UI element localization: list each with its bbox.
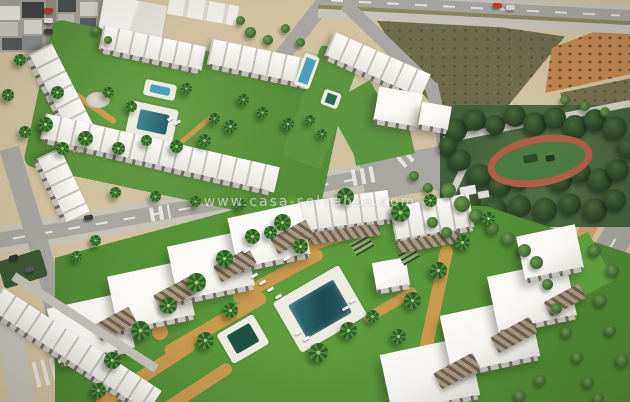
sun-lounger [302, 335, 310, 341]
sun-lounger [258, 279, 266, 285]
palm-tree [282, 118, 294, 130]
watermark: www.casa-solvenza.com [185, 193, 435, 211]
sun-lounger [348, 297, 356, 303]
palm-tree [293, 239, 308, 254]
street-tree [600, 107, 610, 117]
car [8, 253, 18, 260]
street-tree [551, 303, 562, 314]
palm-tree [309, 343, 328, 362]
palm-tree [366, 310, 379, 323]
street-tree [427, 217, 438, 228]
palm-tree [90, 235, 101, 246]
palm-tree [198, 134, 211, 147]
palm-tree [181, 83, 192, 94]
street-tree [542, 279, 553, 290]
palm-tree [404, 292, 421, 309]
palm-tree [91, 383, 106, 398]
palm-tree [19, 126, 31, 138]
palm-tree [78, 131, 93, 146]
street-tree [530, 256, 543, 269]
palm-tree [150, 191, 161, 202]
palm-tree [160, 297, 177, 314]
palm-tree [38, 117, 53, 132]
palm-tree [305, 115, 315, 125]
street-tree [616, 354, 629, 367]
street-tree [423, 183, 433, 193]
street-tree [593, 393, 604, 402]
street-tree [580, 101, 590, 111]
sun-lounger [166, 115, 174, 121]
street-tree [263, 35, 273, 45]
palm-tree [170, 140, 183, 153]
sun-lounger [341, 305, 349, 311]
sun-lounger [282, 255, 290, 261]
car [44, 29, 53, 34]
street-tree [236, 16, 245, 25]
palm-tree [112, 142, 125, 155]
palm-tree [2, 89, 14, 101]
palm-tree [71, 251, 82, 262]
car [505, 4, 514, 9]
palm-tree [245, 229, 260, 244]
palm-tree [391, 329, 406, 344]
sun-lounger [173, 119, 181, 125]
palm-tree [224, 120, 237, 133]
street-tree [245, 27, 256, 38]
car [83, 214, 93, 220]
palm-tree [317, 129, 327, 139]
palm-tree [209, 113, 220, 124]
street-tree [560, 95, 570, 105]
palm-tree [238, 94, 249, 105]
street-tree [104, 36, 112, 44]
car [44, 8, 53, 13]
street-tree [502, 232, 515, 245]
street-tree [454, 196, 470, 212]
palm-tree [257, 107, 268, 118]
sun-lounger [242, 247, 250, 253]
street-tree [518, 244, 531, 257]
street-tree [409, 171, 419, 181]
palm-tree [187, 273, 206, 292]
street-tree [561, 327, 572, 338]
palm-tree [14, 54, 26, 66]
street-tree [605, 325, 616, 336]
palm-tree [340, 322, 357, 339]
street-tree [441, 227, 452, 238]
street-tree [583, 377, 594, 388]
palm-tree [197, 332, 214, 349]
palm-tree [103, 87, 114, 98]
street-tree [296, 38, 305, 47]
palm-tree [264, 226, 277, 239]
street-tree [572, 352, 583, 363]
palm-tree [126, 101, 137, 112]
sun-lounger [294, 329, 302, 335]
palm-tree [56, 142, 69, 155]
palm-tree [216, 250, 233, 267]
palm-tree [455, 235, 470, 250]
palm-tree [430, 262, 447, 279]
sun-lounger [266, 286, 274, 292]
sun-lounger [274, 293, 282, 299]
aerial-development-render: www.casa-solvenza.com [0, 0, 630, 402]
street-tree [588, 244, 601, 257]
palm-tree [223, 303, 238, 318]
street-tree [92, 26, 101, 35]
car [492, 2, 501, 7]
street-tree [469, 209, 483, 223]
street-tree [535, 375, 546, 386]
street-tree [441, 183, 456, 198]
car [44, 18, 53, 23]
palm-tree [110, 187, 121, 198]
sun-lounger [250, 272, 258, 278]
street-tree [606, 264, 619, 277]
palm-tree [51, 86, 64, 99]
palm-tree [131, 321, 150, 340]
street-tree [594, 294, 607, 307]
palm-tree [141, 135, 152, 146]
street-tree [281, 24, 290, 33]
palm-tree [104, 352, 121, 369]
palm-tree [274, 214, 291, 231]
street-tree [514, 390, 526, 402]
palm-tree [482, 212, 495, 225]
car [24, 265, 34, 272]
